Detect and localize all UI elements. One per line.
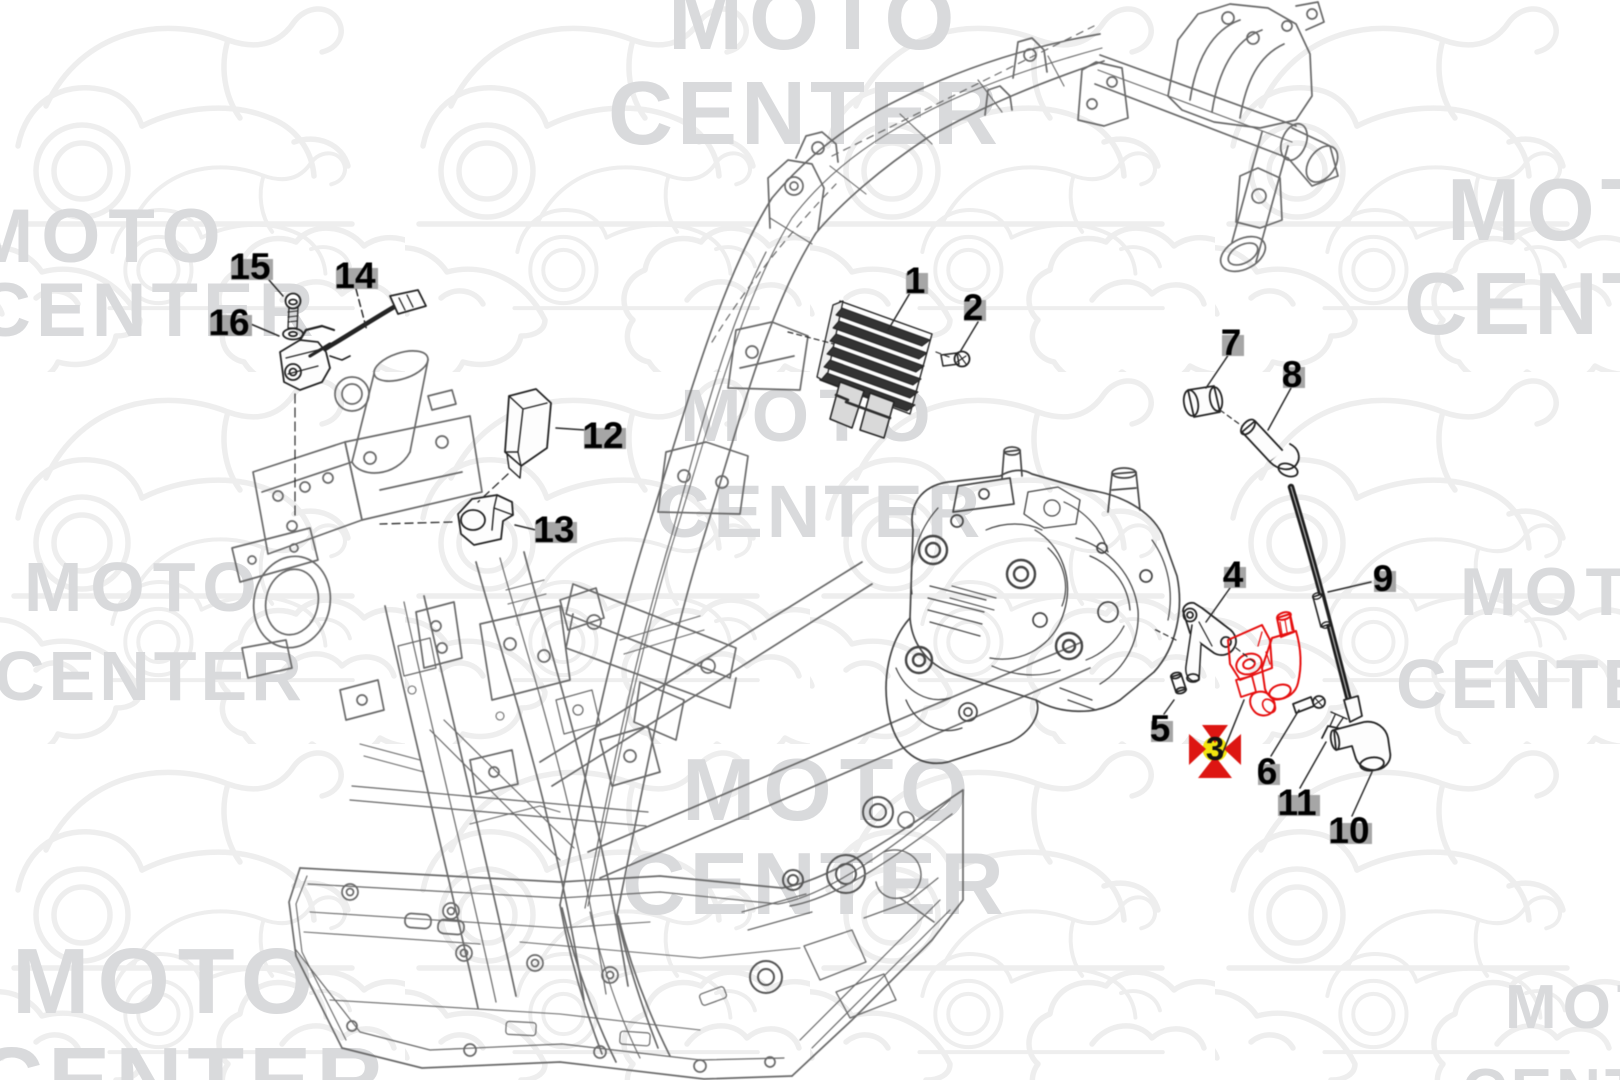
svg-text:2: 2 (963, 287, 984, 328)
svg-text:MOTO: MOTO (1505, 973, 1620, 1042)
svg-text:1: 1 (905, 260, 926, 301)
svg-text:5: 5 (1150, 708, 1171, 749)
svg-text:6: 6 (1257, 751, 1278, 792)
svg-text:CENTER: CENTER (0, 268, 318, 353)
svg-text:11: 11 (1277, 782, 1316, 823)
svg-text:CENTER: CENTER (1404, 254, 1620, 353)
svg-text:MOTO: MOTO (1447, 160, 1620, 259)
svg-text:12: 12 (582, 415, 623, 456)
svg-text:CENTER: CENTER (1462, 1057, 1620, 1080)
svg-text:8: 8 (1282, 354, 1303, 395)
svg-text:16: 16 (208, 302, 249, 343)
svg-text:MOTO: MOTO (1460, 554, 1620, 630)
svg-text:15: 15 (229, 246, 270, 287)
svg-text:MOTO: MOTO (24, 548, 265, 626)
svg-text:CENTER: CENTER (0, 1028, 388, 1080)
svg-text:CENTER: CENTER (1396, 645, 1620, 723)
svg-text:3: 3 (1206, 730, 1224, 767)
svg-text:MOTO: MOTO (668, 0, 960, 69)
svg-text:7: 7 (1221, 322, 1242, 363)
svg-text:14: 14 (334, 255, 376, 296)
svg-text:13: 13 (533, 509, 574, 550)
svg-text:4: 4 (1223, 554, 1244, 595)
svg-text:MOTO: MOTO (12, 929, 321, 1033)
svg-text:10: 10 (1328, 810, 1369, 851)
svg-text:9: 9 (1373, 558, 1394, 599)
svg-text:MOTO: MOTO (0, 194, 229, 279)
